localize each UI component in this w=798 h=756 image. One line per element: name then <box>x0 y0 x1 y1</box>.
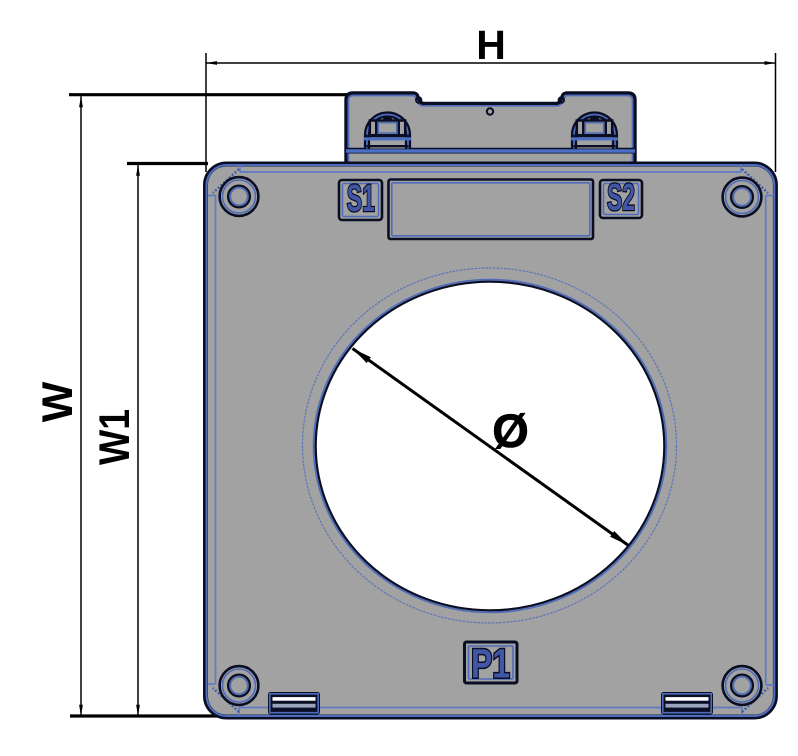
svg-text:H: H <box>476 22 506 68</box>
svg-text:P1: P1 <box>471 641 510 687</box>
svg-text:S2: S2 <box>607 177 635 219</box>
svg-text:W: W <box>34 381 82 422</box>
svg-text:S1: S1 <box>347 178 375 220</box>
svg-text:Ø: Ø <box>492 404 529 457</box>
svg-text:W1: W1 <box>91 409 139 465</box>
